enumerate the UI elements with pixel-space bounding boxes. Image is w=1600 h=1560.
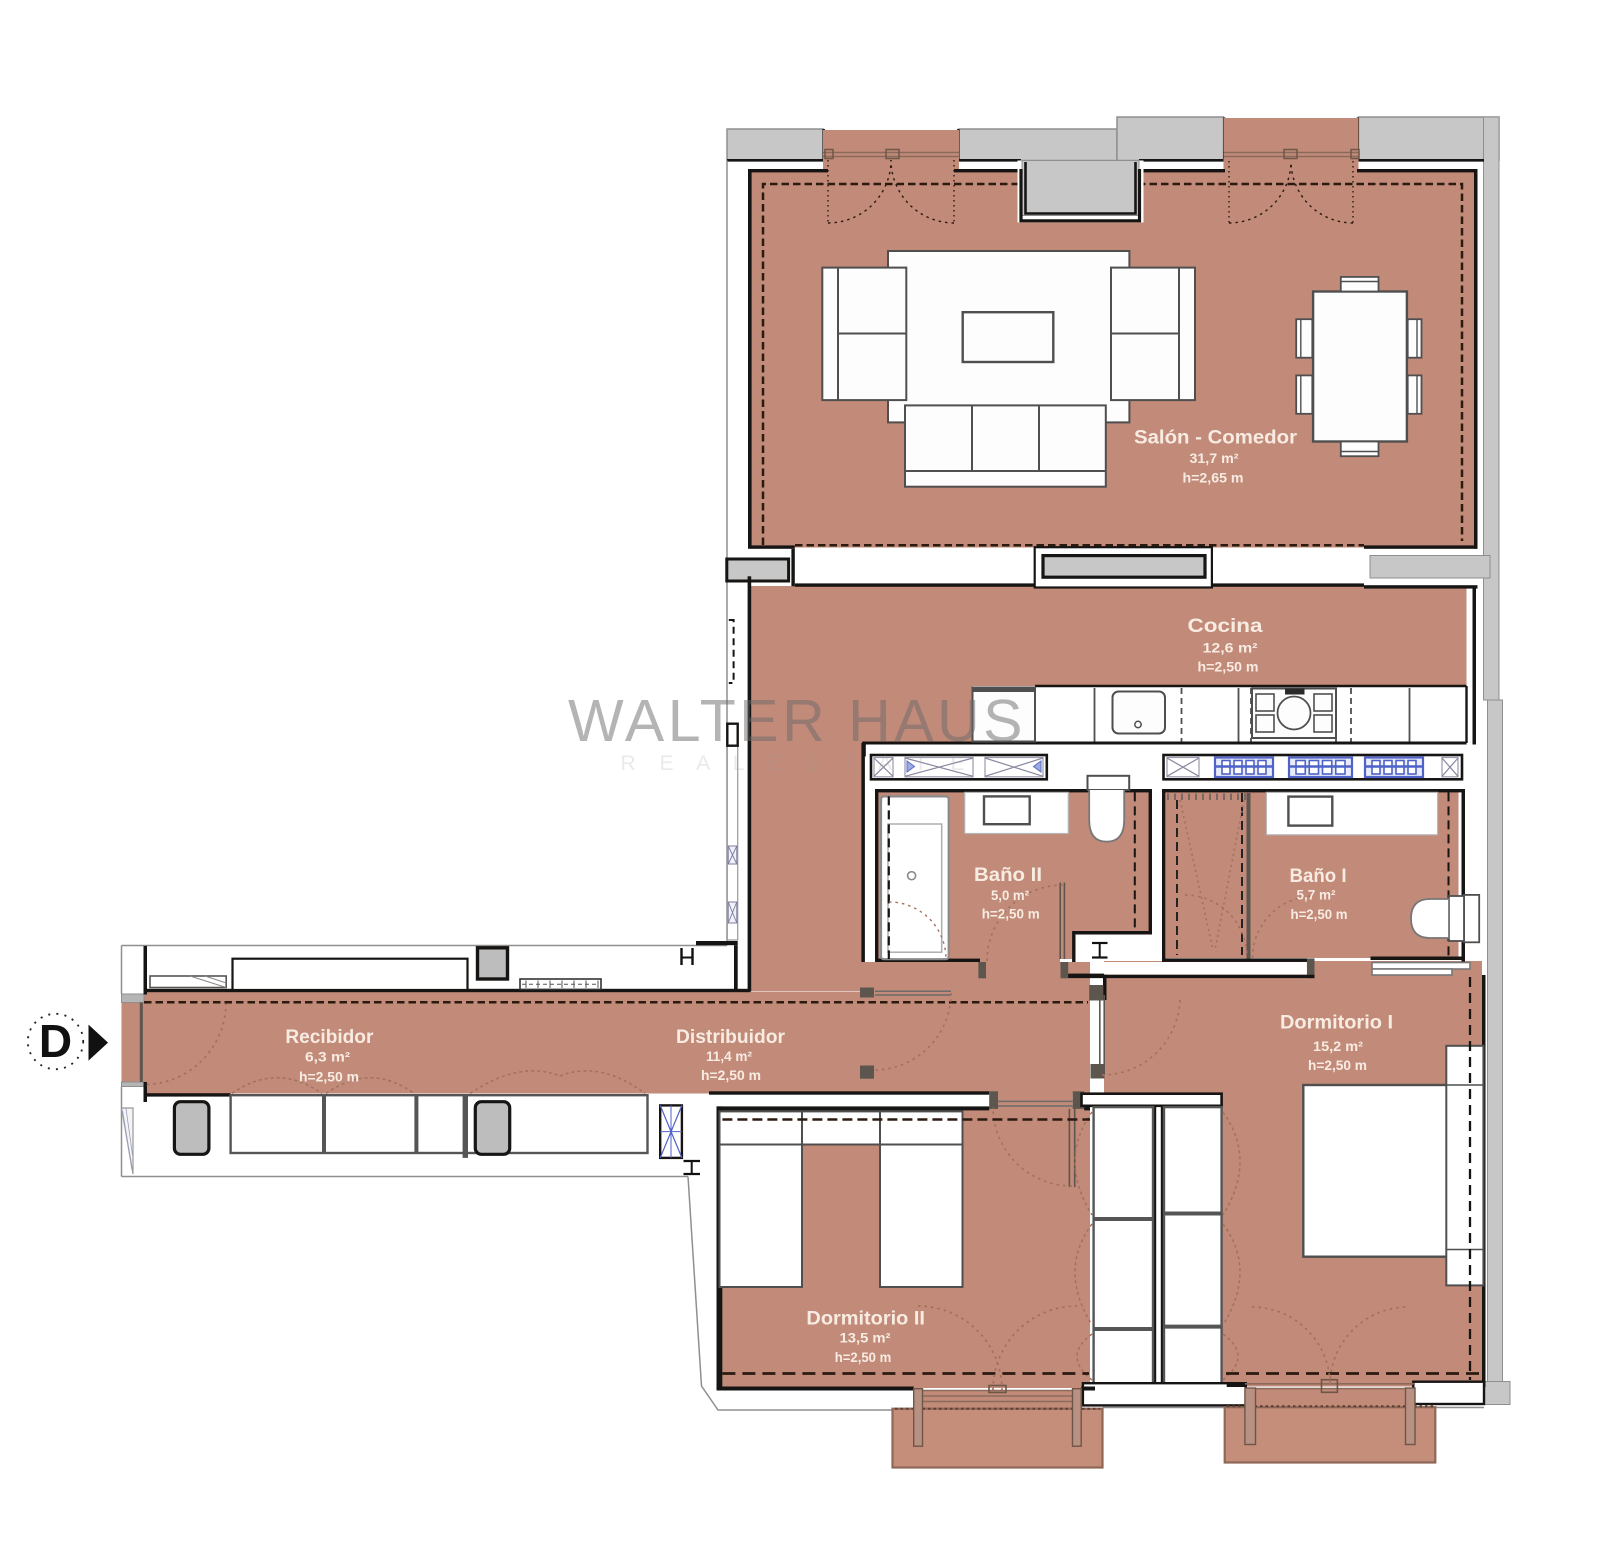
svg-text:h=2,50 m: h=2,50 m <box>835 1350 892 1365</box>
svg-text:6,3 m²: 6,3 m² <box>305 1049 350 1064</box>
svg-text:Dormitorio II: Dormitorio II <box>806 1308 925 1330</box>
svg-text:Distribuidor: Distribuidor <box>676 1026 785 1048</box>
svg-text:h=2,50 m: h=2,50 m <box>982 907 1040 922</box>
svg-text:Dormitorio I: Dormitorio I <box>1280 1011 1393 1033</box>
svg-text:Salón - Comedor: Salón - Comedor <box>1134 427 1297 449</box>
svg-text:12,6 m²: 12,6 m² <box>1203 641 1258 656</box>
svg-text:WALTER HAUS: WALTER HAUS <box>568 688 1026 754</box>
svg-text:5,7 m²: 5,7 m² <box>1297 888 1336 903</box>
svg-text:Baño I: Baño I <box>1290 866 1347 887</box>
svg-text:h=2,50 m: h=2,50 m <box>701 1068 761 1083</box>
svg-text:Baño II: Baño II <box>974 865 1042 886</box>
svg-text:h=2,65 m: h=2,65 m <box>1183 471 1244 486</box>
svg-text:h=2,50 m: h=2,50 m <box>1308 1058 1367 1073</box>
svg-text:D: D <box>39 1015 72 1067</box>
svg-text:Recibidor: Recibidor <box>285 1026 373 1048</box>
svg-text:31,7 m²: 31,7 m² <box>1190 451 1239 466</box>
svg-text:R E A L E S T A T E: R E A L E S T A T E <box>620 752 973 775</box>
svg-text:h=2,50 m: h=2,50 m <box>299 1070 359 1085</box>
svg-text:11,4 m²: 11,4 m² <box>706 1049 752 1064</box>
svg-text:15,2 m²: 15,2 m² <box>1313 1039 1363 1054</box>
svg-text:h=2,50 m: h=2,50 m <box>1198 660 1259 675</box>
svg-text:h=2,50 m: h=2,50 m <box>1291 907 1348 922</box>
svg-text:Cocina: Cocina <box>1188 616 1263 637</box>
svg-text:13,5 m²: 13,5 m² <box>840 1331 891 1346</box>
svg-text:5,0 m²: 5,0 m² <box>991 888 1029 903</box>
